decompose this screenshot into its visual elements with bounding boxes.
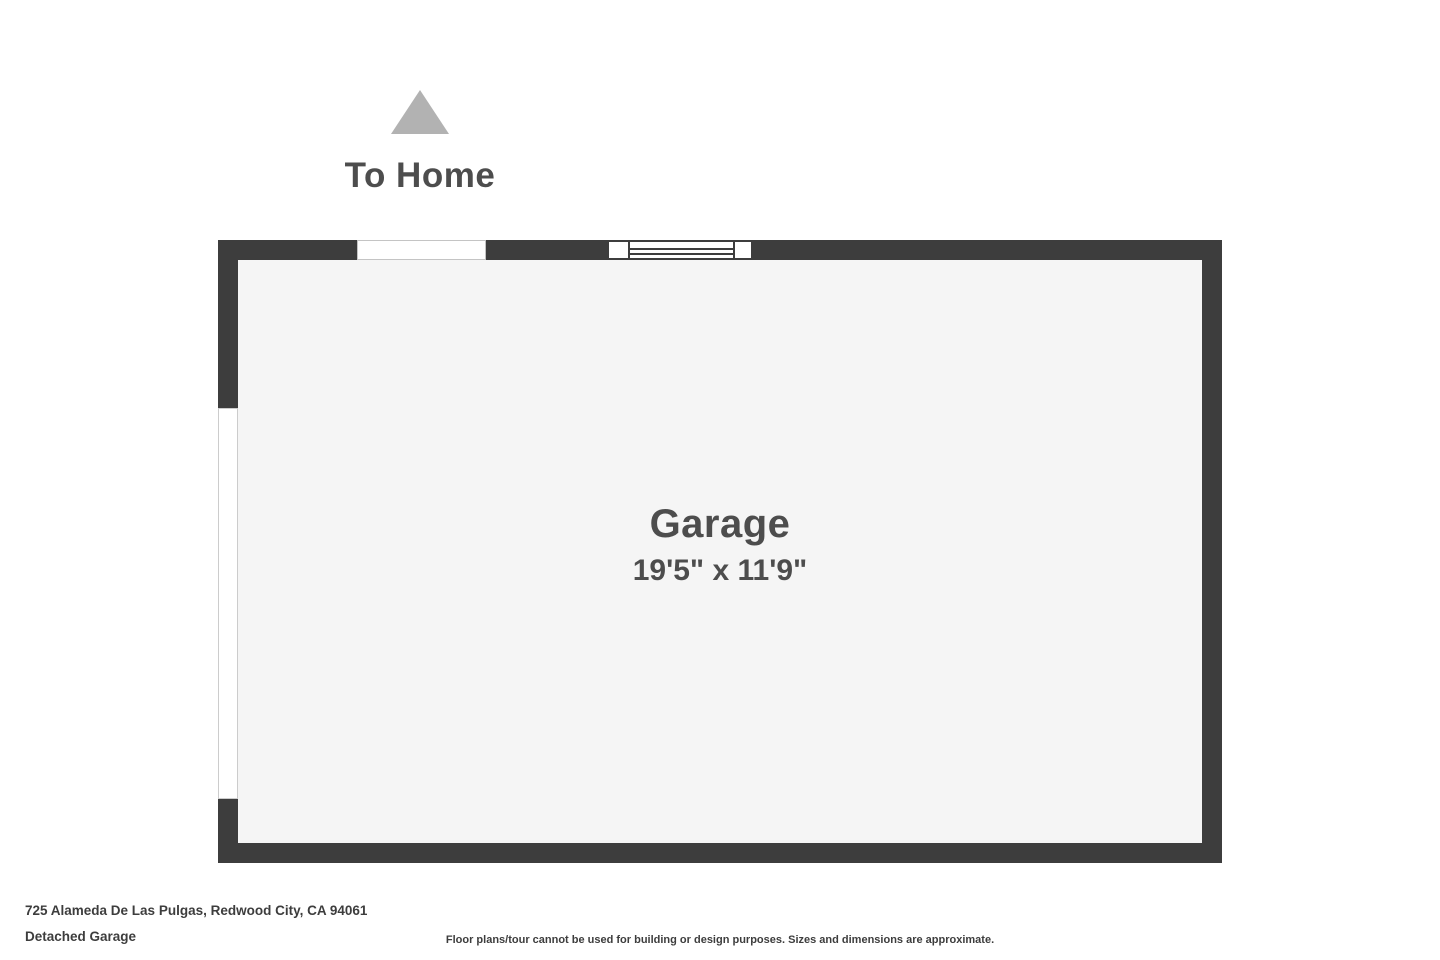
garage-door-opening-left-wall: [218, 408, 238, 799]
window-frame-divider-left: [628, 242, 630, 258]
disclaimer-text: Floor plans/tour cannot be used for buil…: [0, 934, 1440, 946]
garage-floorplan: Garage 19'5" x 11'9": [218, 240, 1222, 863]
room-label: Garage 19'5" x 11'9": [218, 502, 1222, 588]
north-indicator: To Home: [270, 90, 570, 196]
door-opening-top-wall: [357, 240, 486, 260]
property-address: 725 Alameda De Las Pulgas, Redwood City,…: [25, 903, 367, 918]
window-pane-line-bottom: [630, 253, 733, 255]
to-home-arrow-icon: [391, 90, 449, 134]
window-pane-line-top: [630, 248, 733, 250]
window-symbol: [607, 240, 753, 260]
room-name: Garage: [218, 502, 1222, 547]
window-frame-divider-right: [733, 242, 735, 258]
to-home-label: To Home: [270, 156, 570, 196]
room-dimensions: 19'5" x 11'9": [218, 554, 1222, 588]
